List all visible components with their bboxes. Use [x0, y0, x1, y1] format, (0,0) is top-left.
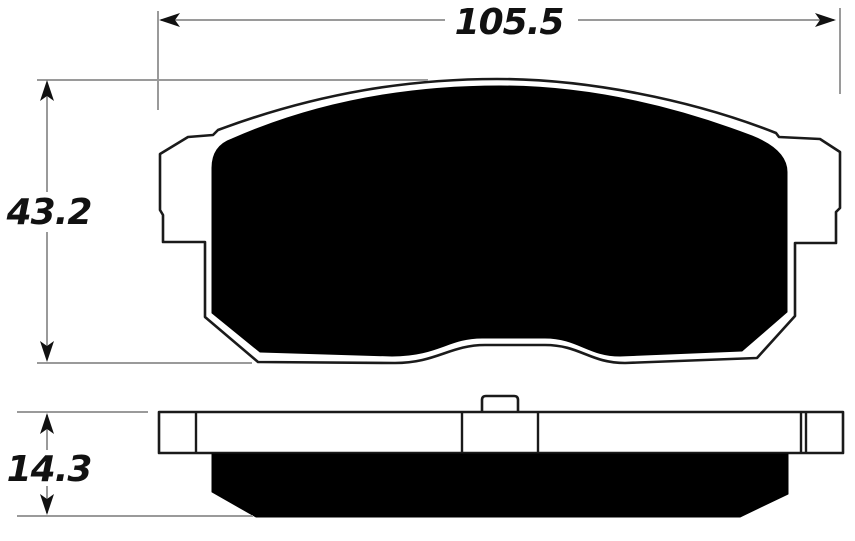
brake-pad-technical-drawing: 105.5 43.2 14.3 — [0, 0, 855, 541]
thickness-dimension-label: 14.3 — [7, 449, 92, 490]
friction-material-side — [212, 454, 788, 517]
front-view — [160, 79, 840, 363]
backing-plate-side — [159, 412, 843, 453]
width-dimension-label: 105.5 — [455, 2, 564, 43]
drawing-svg: 105.5 43.2 14.3 — [0, 0, 855, 541]
height-dimension-label: 43.2 — [6, 192, 92, 233]
side-view — [159, 396, 843, 517]
friction-material-front — [212, 86, 787, 356]
